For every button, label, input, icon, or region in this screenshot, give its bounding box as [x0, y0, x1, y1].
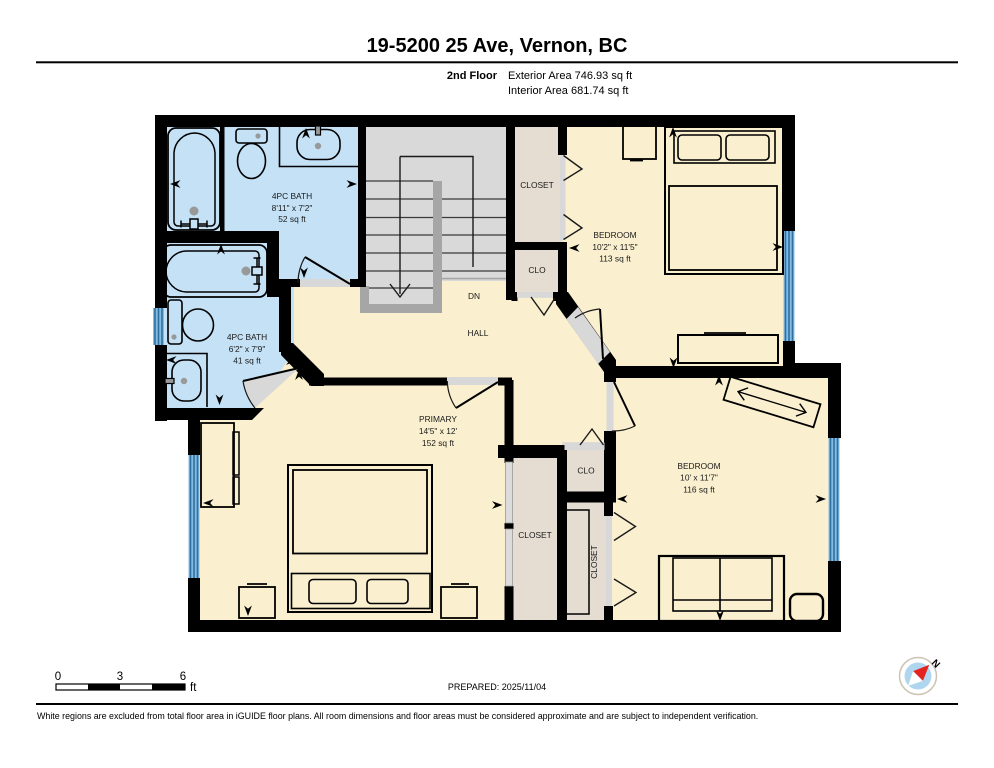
svg-text:152 sq ft: 152 sq ft: [422, 438, 455, 448]
svg-text:CLO: CLO: [577, 466, 595, 476]
svg-text:DN: DN: [468, 291, 480, 301]
svg-text:Exterior Area 746.93 sq ft: Exterior Area 746.93 sq ft: [508, 70, 632, 82]
svg-text:CLOSET: CLOSET: [518, 530, 552, 540]
svg-text:6: 6: [180, 671, 186, 683]
svg-text:116 sq ft: 116 sq ft: [683, 485, 715, 495]
svg-text:4PC BATH: 4PC BATH: [272, 191, 312, 201]
svg-text:19-5200 25 Ave, Vernon, BC: 19-5200 25 Ave, Vernon, BC: [367, 35, 628, 57]
svg-text:PRIMARY: PRIMARY: [419, 414, 457, 424]
svg-text:113 sq ft: 113 sq ft: [599, 254, 631, 264]
svg-text:BEDROOM: BEDROOM: [593, 230, 636, 240]
svg-text:PREPARED: 2025/11/04: PREPARED: 2025/11/04: [448, 682, 546, 692]
svg-text:14'5" x 12': 14'5" x 12': [419, 426, 458, 436]
svg-text:BEDROOM: BEDROOM: [677, 461, 720, 471]
svg-text:White regions are excluded fro: White regions are excluded from total fl…: [37, 711, 758, 721]
svg-text:HALL: HALL: [468, 328, 489, 338]
svg-text:10'2" x 11'5": 10'2" x 11'5": [592, 242, 637, 252]
svg-text:CLO: CLO: [528, 265, 546, 275]
svg-text:Interior Area 681.74 sq ft: Interior Area 681.74 sq ft: [508, 85, 628, 97]
svg-text:ft: ft: [190, 682, 197, 694]
svg-text:2nd Floor: 2nd Floor: [447, 70, 498, 82]
svg-text:41 sq ft: 41 sq ft: [233, 356, 261, 366]
svg-text:3: 3: [117, 671, 123, 683]
svg-text:8'11" x 7'2": 8'11" x 7'2": [272, 203, 313, 213]
svg-text:CLOSET: CLOSET: [589, 545, 599, 579]
svg-text:4PC BATH: 4PC BATH: [227, 332, 267, 342]
svg-text:6'2" x 7'9": 6'2" x 7'9": [229, 344, 266, 354]
svg-text:CLOSET: CLOSET: [520, 180, 554, 190]
svg-text:0: 0: [55, 671, 61, 683]
svg-text:52 sq ft: 52 sq ft: [278, 214, 306, 224]
svg-text:10' x 11'7": 10' x 11'7": [680, 473, 718, 483]
